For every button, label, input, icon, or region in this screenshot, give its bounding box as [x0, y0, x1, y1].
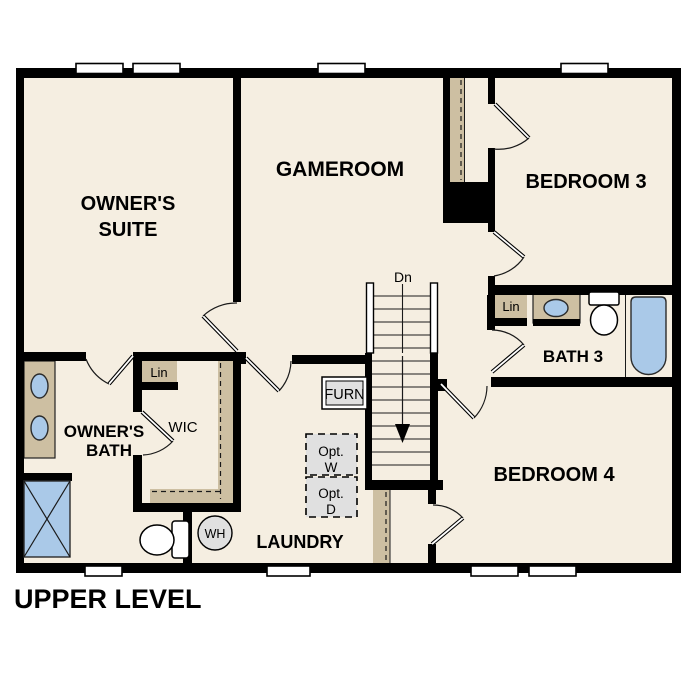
furnace-label: FURN	[324, 387, 364, 403]
room-label-bath3: BATH 3	[543, 347, 603, 366]
window	[76, 64, 123, 74]
bathtub	[631, 297, 666, 375]
wall-suite-gameroom	[233, 78, 241, 302]
window	[529, 566, 576, 576]
toilet-bowl	[591, 305, 618, 335]
wall-bedroom3-stub3	[488, 223, 495, 232]
window	[133, 64, 180, 74]
wall-owners-bath-top	[16, 352, 86, 361]
wall-bedroom3-bottom	[491, 285, 672, 295]
optional-dryer-label-1: Opt.	[318, 486, 344, 501]
wall-exterior-left	[16, 68, 24, 573]
wall-chase-left	[443, 78, 450, 182]
window	[267, 566, 310, 576]
room-label-gameroom: GAMEROOM	[276, 158, 404, 181]
optional-washer-label-2: W	[325, 460, 338, 475]
window	[85, 566, 122, 576]
chase-upper	[450, 78, 464, 182]
optional-washer-label-1: Opt.	[318, 444, 344, 459]
wall-bath3-vanity-base	[533, 319, 580, 326]
sink	[31, 374, 48, 398]
page-title: UPPER LEVEL	[14, 584, 202, 614]
linen-label-wic: Lin	[150, 365, 167, 380]
toilet-bowl	[140, 525, 174, 555]
wall-stair-bottom	[365, 480, 443, 490]
wall-linen-bath3-bottom	[495, 318, 527, 326]
toilet-tank	[589, 292, 619, 305]
room-label-wic: WIC	[168, 419, 197, 436]
wall-laundry-top	[292, 355, 372, 364]
room-label-laundry: LAUNDRY	[256, 532, 343, 552]
wall-bedroom3-stub1	[488, 78, 495, 104]
room-label-bedroom3: BEDROOM 3	[525, 171, 646, 193]
wall-bath3-bottom	[491, 377, 672, 387]
wall-exterior-right	[672, 68, 681, 573]
room-label-bedroom4: BEDROOM 4	[493, 464, 615, 486]
optional-dryer-label-2: D	[326, 502, 336, 517]
window	[561, 64, 608, 74]
wall-bedroom3-stub2	[488, 148, 495, 182]
wall-wic-bottom	[142, 503, 241, 512]
stairs-dn-label: Dn	[394, 269, 412, 285]
wall-wic-top	[133, 352, 241, 361]
room-label-owners-bath-2: BATH	[86, 441, 132, 460]
room-label-owners-suite-1: OWNER'S	[81, 193, 176, 215]
wall-wic-right	[233, 361, 241, 512]
wall-stair-left	[365, 353, 372, 480]
window	[471, 566, 518, 576]
room-label-owners-bath-1: OWNER'S	[64, 422, 145, 441]
floor-plan-page: OWNER'S SUITE GAMEROOM BEDROOM 3 BATH 3 …	[0, 0, 687, 687]
stair-rail-right	[431, 283, 438, 353]
water-heater-label: WH	[205, 527, 226, 541]
wall-wic-left-upper	[133, 361, 142, 412]
wall-closet4-upper	[428, 490, 436, 504]
room-label-owners-suite-2: SUITE	[99, 219, 158, 241]
wall-wic-left-lower	[133, 455, 142, 512]
stair-rail-left	[367, 283, 374, 353]
window	[318, 64, 365, 74]
wall-closet4-lower	[428, 544, 436, 563]
wall-stair-right	[430, 353, 438, 483]
wall-solid-block	[443, 182, 495, 223]
chase-lower	[373, 490, 390, 563]
sink	[31, 416, 48, 440]
wall-shower-top	[16, 473, 72, 481]
wall-bath3-left	[487, 295, 495, 330]
wall-linen-wic-bottom	[142, 382, 178, 390]
sink	[544, 300, 568, 317]
floor-plan-drawing: OWNER'S SUITE GAMEROOM BEDROOM 3 BATH 3 …	[0, 0, 687, 687]
linen-label-bath3: Lin	[502, 299, 519, 314]
